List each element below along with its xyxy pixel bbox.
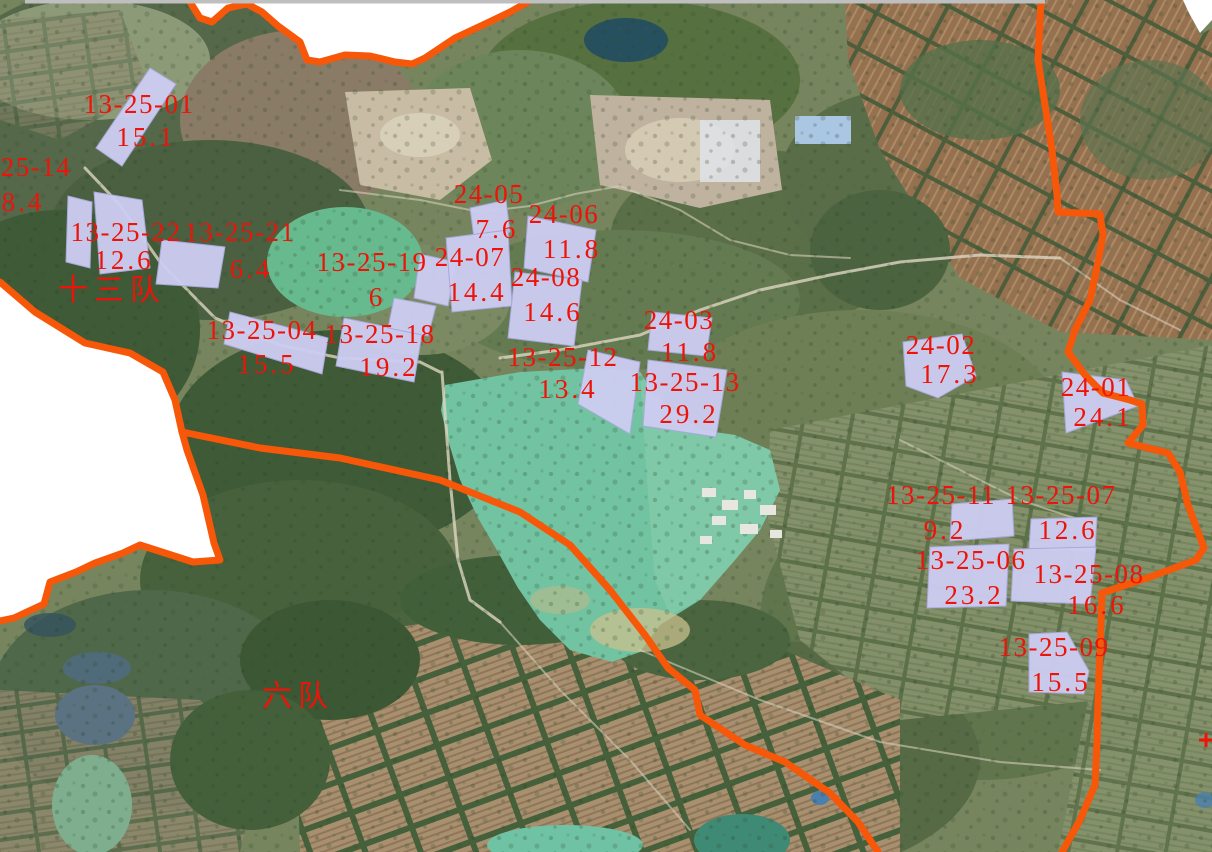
- top-gray-strip: [25, 0, 1045, 4]
- parcel-polygon[interactable]: [927, 544, 1009, 608]
- parcel-polygon[interactable]: [508, 272, 582, 346]
- parcel-polygon[interactable]: [1011, 547, 1096, 604]
- parcel-polygon[interactable]: [643, 360, 727, 437]
- parcel-polygon[interactable]: [1029, 517, 1097, 551]
- parcel-polygon[interactable]: [66, 196, 92, 268]
- map-viewport[interactable]: 13-25-0115.125-148.413-25-2212.613-25-21…: [0, 0, 1212, 852]
- parcel-polygon[interactable]: [94, 192, 150, 274]
- satellite-basemap[interactable]: [0, 0, 1212, 852]
- parcel-polygon[interactable]: [950, 499, 1014, 541]
- parcel-polygon[interactable]: [446, 230, 512, 312]
- parcel-polygon[interactable]: [156, 240, 225, 288]
- parcel-polygon[interactable]: [648, 312, 712, 356]
